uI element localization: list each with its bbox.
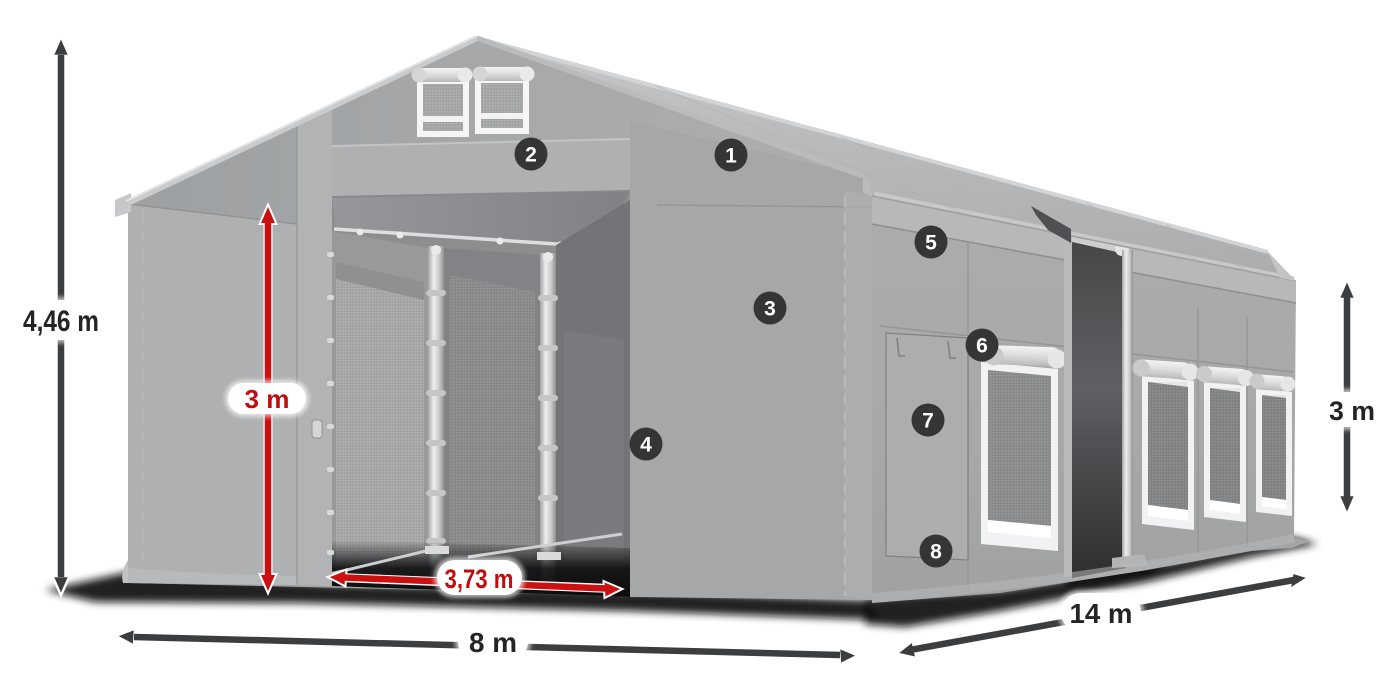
svg-text:4: 4 [640, 434, 652, 457]
svg-text:3 m: 3 m [245, 384, 290, 414]
svg-text:8 m: 8 m [469, 627, 517, 658]
svg-text:7: 7 [922, 410, 934, 433]
svg-text:6: 6 [976, 335, 988, 358]
svg-text:3 m: 3 m [1329, 396, 1375, 426]
svg-text:2: 2 [525, 144, 537, 167]
svg-text:5: 5 [925, 232, 937, 255]
svg-text:1: 1 [725, 145, 737, 168]
svg-text:4,46 m: 4,46 m [23, 305, 99, 338]
svg-text:8: 8 [930, 541, 942, 564]
svg-text:14 m: 14 m [1070, 598, 1133, 629]
svg-text:3: 3 [764, 298, 776, 321]
svg-text:3,73 m: 3,73 m [445, 564, 514, 594]
